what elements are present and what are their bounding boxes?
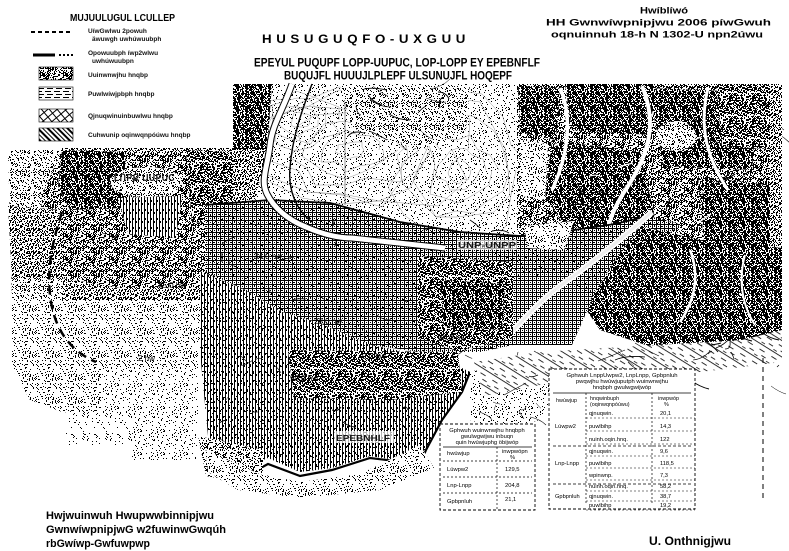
svg-text:BUQUJFL HUUUJLPLEPF ULSUNUJFL: BUQUJFL HUUUJLPLEPF ULSUNUJFL HOQEPF <box>284 71 512 83</box>
svg-text:21,1: 21,1 <box>505 497 516 503</box>
svg-text:Hwíblíwó: Hwíblíwó <box>640 6 688 17</box>
svg-text:129,5: 129,5 <box>505 467 520 473</box>
svg-text:Lúwpw2: Lúwpw2 <box>447 467 468 473</box>
svg-text:14,3: 14,3 <box>660 424 671 430</box>
svg-text:19,2: 19,2 <box>660 503 671 509</box>
svg-text:%: % <box>510 455 515 461</box>
svg-text:204,8: 204,8 <box>505 483 520 489</box>
svg-text:Uuinwnwjhu hnqbp: Uuinwnwjhu hnqbp <box>88 72 148 79</box>
svg-text:LՈPՔ UUPUC: LՈPՔ UUPUC <box>114 173 175 184</box>
svg-text:Lúwpw2: Lúwpw2 <box>555 424 576 430</box>
svg-text:118,5: 118,5 <box>660 461 674 467</box>
svg-text:hwúwjup: hwúwjup <box>447 451 470 457</box>
svg-text:7,3: 7,3 <box>660 473 668 479</box>
svg-text:20,1: 20,1 <box>660 411 671 417</box>
svg-text:9,6: 9,6 <box>660 449 668 455</box>
svg-text:Hwjwuinwuh Hwupwwbinnipjwu: Hwjwuinwuh Hwupwwbinnipjwu <box>46 510 214 522</box>
svg-text:Gpbpnluh: Gpbpnluh <box>555 494 580 500</box>
svg-text:Gpbpnluh: Gpbpnluh <box>447 499 472 505</box>
svg-text:Opowuubph íwp2wlwu: Opowuubph íwp2wlwu <box>88 50 158 57</box>
svg-text:2 hw: 2 hw <box>138 354 155 363</box>
svg-text:äwuwgh uwhúwuubph: äwuwgh uwhúwuubph <box>92 36 161 43</box>
svg-text:qjnuqwin.: qjnuqwin. <box>589 449 613 455</box>
svg-text:58,2: 58,2 <box>660 484 671 490</box>
svg-text:Lnp-Lnpp: Lnp-Lnpp <box>555 461 579 467</box>
svg-text:rbGwíwp-Gwfuwpwp: rbGwíwp-Gwfuwpwp <box>46 538 150 550</box>
svg-text:90,0 hw: 90,0 hw <box>290 374 318 383</box>
svg-text:MUJUULUGUL LCULLEP: MUJUULUGUL LCULLEP <box>70 13 175 24</box>
svg-text:EPEYUL PUQUPF LOPP-UUPUC, LOP-: EPEYUL PUQUPF LOPP-UUPUC, LOP-LOPP EY EP… <box>254 58 540 70</box>
svg-text:45,0 hw: 45,0 hw <box>158 281 186 290</box>
svg-text:nuinh.oqin.hnq.: nuinh.oqin.hnq. <box>589 437 628 443</box>
svg-text:Lnp-Lnpp: Lnp-Lnpp <box>447 483 472 489</box>
svg-text:oqnuinnuh 18-h N 1302-U npn2úw: oqnuinnuh 18-h N 1302-U npn2úwu <box>551 30 763 41</box>
svg-text:HUSUGUQFO-UXGUU: HUSUGUQFO-UXGUU <box>262 34 470 46</box>
svg-text:qjnuqwin.: qjnuqwin. <box>589 494 613 500</box>
svg-text:qjnuqwin.: qjnuqwin. <box>589 411 613 417</box>
svg-text:122: 122 <box>660 437 670 443</box>
svg-text:UíwGwlwu 2powuh: UíwGwlwu 2powuh <box>88 28 147 35</box>
svg-text:wpinwnp.: wpinwnp. <box>588 473 613 479</box>
svg-text:puwlbihp: puwlbihp <box>589 424 611 430</box>
svg-text:hwúwjup: hwúwjup <box>556 398 577 404</box>
svg-text:23,0 hw: 23,0 hw <box>314 317 342 326</box>
svg-text:hnqbph gwulwgwijwóp: hnqbph gwulwgwijwóp <box>593 385 652 391</box>
svg-text:9,0 hw: 9,0 hw <box>362 352 386 361</box>
svg-text:quin hwúwjuphg öbijwóp: quin hwúwjuphg öbijwóp <box>456 440 519 446</box>
svg-text:HH Gwnwíwpnipjwu 2006 píwGwuh: HH Gwnwíwpnipjwu 2006 píwGwuh <box>546 18 771 29</box>
svg-text:UNP-UNPP: UNP-UNPP <box>458 240 516 250</box>
svg-text:nuinh.oqin.hnq.: nuinh.oqin.hnq. <box>589 484 628 490</box>
svg-text:EPEBNHLF: EPEBNHLF <box>336 433 390 443</box>
svg-text:Qjnuqwinuinbuwlwu hnqbp: Qjnuqwinuinbuwlwu hnqbp <box>88 113 173 120</box>
svg-text:Cuhwunip oqinwqnpóúwu hnqbp: Cuhwunip oqinwqnpóúwu hnqbp <box>88 132 191 139</box>
svg-text:U. Onthnigjwu: U. Onthnigjwu <box>649 534 731 548</box>
svg-text:uwhúwuubpn: uwhúwuubpn <box>92 58 134 65</box>
svg-text:7 hw: 7 hw <box>102 232 119 241</box>
svg-text:Puwlwíwjpbph hnqbp: Puwlwíwjpbph hnqbp <box>88 91 154 98</box>
svg-text:38,7: 38,7 <box>660 494 671 500</box>
svg-text:GwnwíwpnipjwG w2fuwinwGwqúh: GwnwíwpnipjwG w2fuwinwGwqúh <box>46 524 226 536</box>
svg-text:puwlbihp: puwlbihp <box>589 503 611 509</box>
svg-text:(oqinwqnpóúwu): (oqinwqnpóúwu) <box>590 402 630 408</box>
svg-text:%: % <box>664 402 669 408</box>
svg-text:34,0 hw: 34,0 hw <box>254 252 282 261</box>
svg-text:puwlbihp: puwlbihp <box>589 461 611 467</box>
svg-text:90,0 hw: 90,0 hw <box>438 334 466 343</box>
